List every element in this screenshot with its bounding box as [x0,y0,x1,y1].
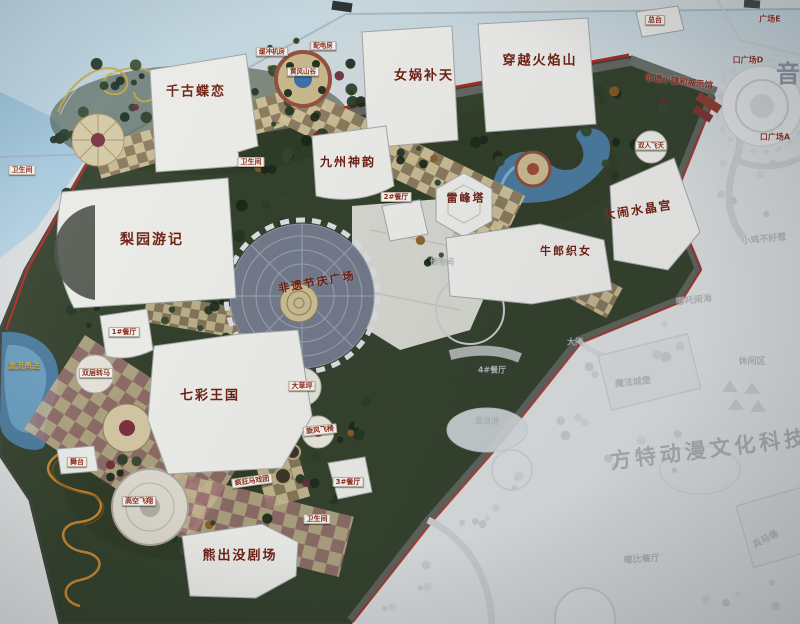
label-weishengjian-2: 卫生间 [238,157,265,167]
label-shuangceng-zhuanma: 双层转马 [79,368,113,378]
label-niulang-zhinv: 牛郎织女 [540,246,592,259]
label-canting-3: 3#餐厅 [333,477,364,487]
label-dacaoping: 大草坪 [289,381,316,391]
label-rukou-guangchang-a: 口广场A [760,132,790,141]
label-dubi-canting: 嘟比餐厅 [624,554,661,567]
label-danao-shuijinggong: 大闹水晶宫 [602,199,673,224]
label-feiyi-jieqing-guangchang: 非遗节庆广场 [277,270,356,296]
label-xiaoji-buhaore: 小鸡不好惹 [741,233,787,248]
label-qiangu-dielian: 千古蝶恋 [166,86,226,101]
label-jiliu-yongjin: 激流勇进 [8,361,40,370]
label-fangte-watermark: 方特动漫文化科技园 [609,422,800,473]
label-xiongchumo-juchang: 熊出没剧场 [202,550,277,565]
label-qicai-wangguo: 七彩王国 [180,390,240,405]
label-damen: 大门 [567,337,583,346]
label-rukou-guangchang-d: 口广场D [733,55,764,64]
label-zongtai: 总台 [645,15,665,25]
label-zaolangchi: 造浪池 [475,416,499,425]
label-peidianfang: 配电房 [310,41,336,50]
label-weishengjian-1: 卫生间 [9,165,36,175]
label-weishengjian-3: 卫生间 [304,514,331,524]
label-nezha-naohai: 哪吒闹海 [676,294,713,308]
label-leifengta: 雷峰塔 [447,193,486,206]
label-xuanfeng-feiyi: 旋风飞椅 [303,423,338,437]
label-shuangren-feitian: 双人飞天 [635,141,667,150]
label-chuwujian: 储物间 [430,257,454,266]
map-labels: 千古蝶恋女娲补天穿越火焰山九州神韵梨园游记雷峰塔大闹水晶宫牛郎织女非遗节庆广场七… [0,0,800,624]
label-mofa-chengbao: 魔法城堡 [615,376,652,390]
label-chuanyue-huoyanshan: 穿越火焰山 [502,55,577,70]
label-gaokong-feixiang: 高空飞翔 [122,496,156,506]
label-yinyue-char: 音 [776,61,800,89]
label-jiuzhou-shenyun: 九州神韵 [320,156,376,170]
label-liyuan-youji: 梨园游记 [120,232,184,248]
park-map-photo: 千古蝶恋女娲补天穿越火焰山九州神韵梨园游记雷峰塔大闹水晶宫牛郎织女非遗节庆广场七… [0,0,800,624]
label-nvwa-butian: 女娲补天 [394,70,454,85]
label-fengkuang-maxituan: 疯狂马戏团 [231,473,273,489]
label-wutai: 舞台 [67,457,87,467]
label-xiuxianqu: 休闲区 [738,357,765,367]
label-huangfeng-shangu: 黄风山谷 [287,67,319,76]
label-feiyi-xiaozhen-zhanshiguan: 非遗小镇和展示馆 [645,74,714,92]
label-huanchong-jifang: 缓冲机房 [256,47,288,56]
label-canting-2: 2#餐厅 [381,192,412,202]
label-canting-4: 4#餐厅 [478,365,506,374]
signboard-clip [744,0,761,9]
label-guangchang-e: 广场E [759,14,780,23]
label-bingmayong: 兵马俑 [752,529,781,551]
label-canting-1: 1#餐厅 [109,327,140,337]
